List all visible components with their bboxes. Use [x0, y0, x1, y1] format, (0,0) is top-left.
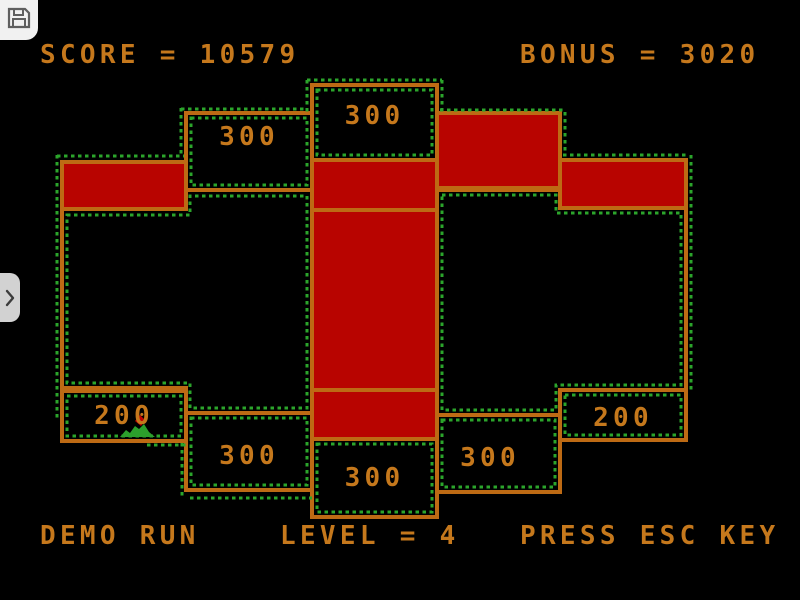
- zone-label-top-left: 300: [186, 124, 312, 150]
- side-panel-handle[interactable]: [0, 273, 20, 322]
- open-zone: [62, 190, 312, 413]
- press-esc-label: PRESS ESC KEY: [520, 523, 779, 549]
- game-window: SCORE = 10579 BONUS = 3020 DEMO RUN LEVE…: [0, 0, 800, 600]
- zone-label-top-center: 300: [312, 103, 437, 129]
- open-zone: [437, 190, 686, 415]
- demo-run-label: DEMO RUN: [40, 523, 200, 549]
- zone-label-right-200: 200: [560, 405, 686, 431]
- score-display: SCORE = 10579: [40, 42, 299, 68]
- captured-block: [560, 160, 686, 208]
- captured-block: [62, 162, 186, 209]
- zone-label-bottom-left: 300: [186, 443, 312, 469]
- bonus-display: BONUS = 3020: [520, 42, 759, 68]
- captured-block: [437, 113, 560, 188]
- floppy-icon: [0, 0, 38, 40]
- zone-label-left-200: 200: [62, 403, 186, 429]
- zone-label-bottom-right: 300: [431, 445, 549, 471]
- captured-block: [312, 160, 437, 210]
- zone-label-bottom-center: 300: [312, 465, 437, 491]
- level-display: LEVEL = 4: [280, 523, 460, 549]
- captured-block: [312, 390, 437, 439]
- save-button[interactable]: [0, 0, 38, 40]
- game-board[interactable]: [0, 0, 800, 600]
- captured-block: [312, 210, 437, 390]
- chevron-right-icon: [4, 288, 16, 308]
